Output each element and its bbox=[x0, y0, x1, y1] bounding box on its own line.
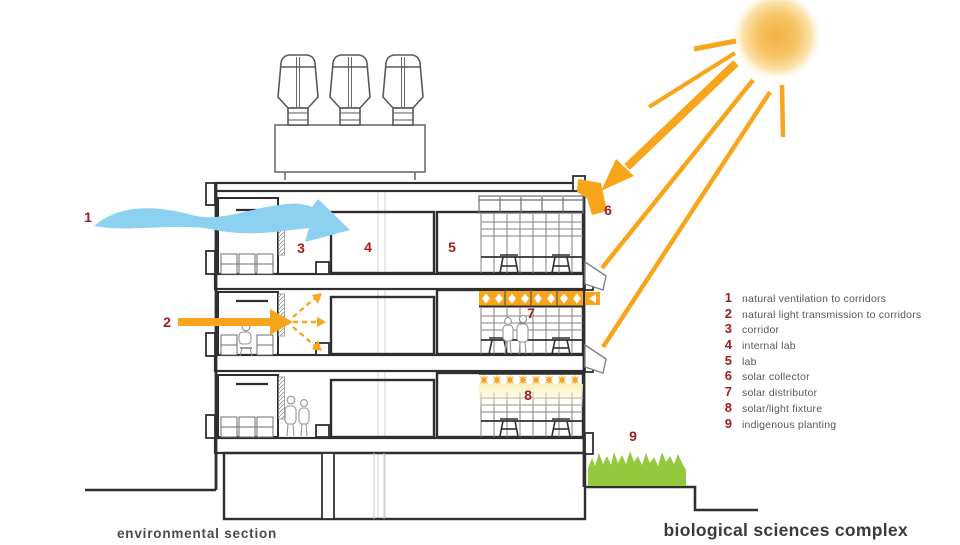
legend-label: natural ventilation to corridors bbox=[742, 293, 886, 305]
legend-item: 5 lab bbox=[712, 353, 942, 369]
marker-7: 7 bbox=[527, 306, 535, 320]
legend-item: 6 solar collector bbox=[712, 368, 942, 384]
legend-num: 8 bbox=[712, 400, 732, 415]
marker-5: 5 bbox=[448, 240, 456, 254]
legend-label: corridor bbox=[742, 324, 779, 336]
legend-item: 4 internal lab bbox=[712, 337, 942, 353]
section-caption: environmental section bbox=[117, 526, 277, 541]
marker-1: 1 bbox=[84, 210, 92, 224]
legend-item: 9 indigenous planting bbox=[712, 416, 942, 432]
legend-label: indigenous planting bbox=[742, 419, 836, 431]
solar-distributor-band bbox=[479, 290, 600, 307]
legend-num: 5 bbox=[712, 353, 732, 368]
ground-lines bbox=[85, 487, 758, 510]
sun-icon bbox=[731, 0, 823, 82]
legend-label: natural light transmission to corridors bbox=[742, 309, 921, 321]
environmental-section-diagram: 1 2 3 4 5 6 7 8 9 1 natural ventilation … bbox=[0, 0, 960, 545]
light-shelves bbox=[585, 262, 606, 373]
legend-item: 3 corridor bbox=[712, 321, 942, 337]
legend-label: solar collector bbox=[742, 371, 810, 383]
legend-num: 9 bbox=[712, 416, 732, 431]
exhaust-stack-icons bbox=[278, 55, 423, 125]
light-arrow-icon bbox=[178, 309, 293, 335]
legend-item: 1 natural ventilation to corridors bbox=[712, 290, 942, 306]
legend-label: internal lab bbox=[742, 340, 796, 352]
solar-collector-shape bbox=[577, 179, 607, 215]
light-fan-arrows bbox=[293, 298, 318, 346]
project-title: biological sciences complex bbox=[664, 520, 908, 541]
legend-label: lab bbox=[742, 356, 757, 368]
legend-num: 4 bbox=[712, 337, 732, 352]
roof-penthouse bbox=[275, 125, 425, 180]
clerestory-windows bbox=[479, 196, 583, 213]
legend-num: 7 bbox=[712, 384, 732, 399]
legend-num: 2 bbox=[712, 306, 732, 321]
legend-num: 3 bbox=[712, 321, 732, 336]
legend-item: 2 natural light transmission to corridor… bbox=[712, 306, 942, 322]
marker-8: 8 bbox=[524, 388, 532, 402]
basement bbox=[224, 453, 585, 519]
legend: 1 natural ventilation to corridors 2 nat… bbox=[712, 290, 942, 431]
marker-4: 4 bbox=[364, 240, 372, 254]
planting-icon bbox=[588, 451, 686, 486]
section-line-art bbox=[0, 0, 960, 545]
marker-9: 9 bbox=[629, 429, 637, 443]
marker-6: 6 bbox=[604, 203, 612, 217]
marker-3: 3 bbox=[297, 241, 305, 255]
legend-num: 6 bbox=[712, 368, 732, 383]
legend-item: 8 solar/light fixture bbox=[712, 400, 942, 416]
legend-num: 1 bbox=[712, 290, 732, 305]
legend-label: solar/light fixture bbox=[742, 403, 822, 415]
legend-item: 7 solar distributor bbox=[712, 384, 942, 400]
legend-label: solar distributor bbox=[742, 387, 817, 399]
wind-arrow-icon bbox=[94, 199, 350, 242]
marker-2: 2 bbox=[163, 315, 171, 329]
